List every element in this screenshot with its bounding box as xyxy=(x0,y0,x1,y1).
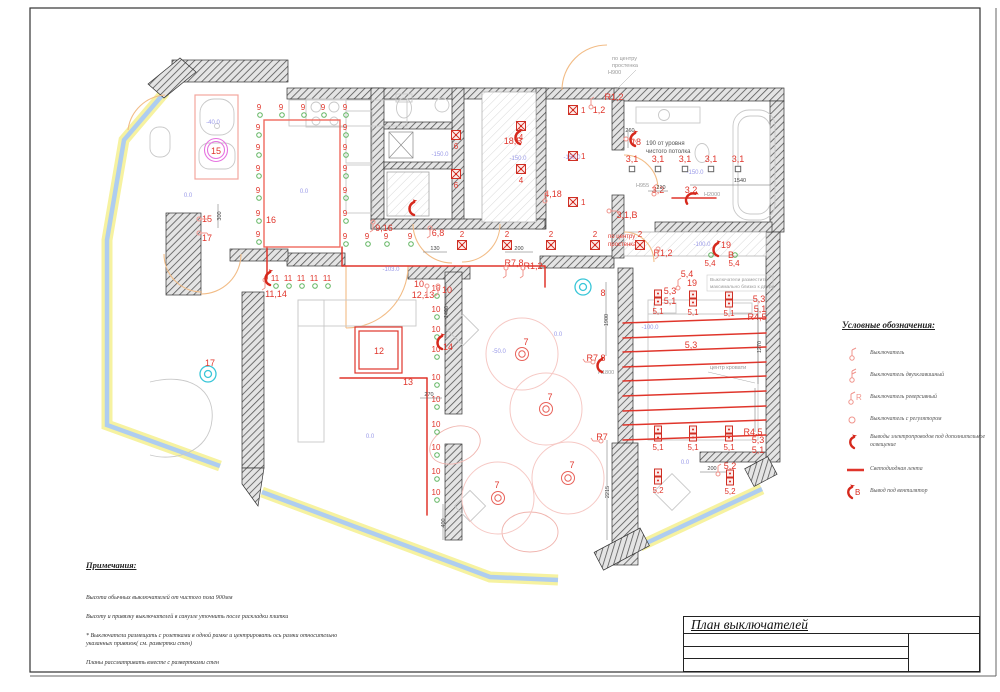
led-strip-icon xyxy=(842,462,870,478)
plan-label: 2 xyxy=(638,230,643,239)
plan-label: 6,8 xyxy=(432,228,445,238)
plan-label: 12,13 xyxy=(412,290,435,300)
plan-label: чистого потолка xyxy=(646,149,691,155)
downlight-marker xyxy=(258,113,263,118)
pendant-marker xyxy=(532,442,604,514)
switch-symbol xyxy=(676,278,681,290)
led-strip-line xyxy=(623,333,766,338)
plan-label: R1,2 xyxy=(604,92,623,102)
plan-label: 200 xyxy=(514,246,523,252)
downlight-marker xyxy=(257,153,262,158)
wall-light-marker xyxy=(727,470,734,485)
title-block-stamp-cell xyxy=(909,634,979,671)
plan-label: -100.0 xyxy=(693,242,711,248)
plan-label: 200 xyxy=(707,466,716,472)
plan-label: 7 xyxy=(523,337,528,347)
plan-label: 6 xyxy=(454,181,459,190)
plan-label: 9 xyxy=(343,209,348,218)
wall-light-marker xyxy=(690,291,697,306)
legend-item: Выключатель с регулятором xyxy=(842,412,994,428)
plan-label: 10 xyxy=(432,467,441,476)
plan-label: 10 xyxy=(432,488,441,497)
square-marker xyxy=(655,166,660,171)
cyan-circle-marker xyxy=(200,366,216,382)
legend-item-label: Вывод под вентилятор xyxy=(870,488,927,496)
plan-label: 1540 xyxy=(734,178,746,184)
plan-label: -150.0 xyxy=(686,170,704,176)
plan-label: 9 xyxy=(301,103,306,112)
plan-label: 9 xyxy=(343,164,348,173)
plan-label: R4,5 xyxy=(747,312,766,322)
note-item: * Выключатели размещать с розетками в од… xyxy=(86,632,338,648)
plan-label: 10 xyxy=(432,305,441,314)
plan-label: -40.0 xyxy=(206,120,220,126)
plan-label: 0.0 xyxy=(681,460,690,466)
plan-label: 10 xyxy=(414,279,424,289)
plan-label: 4,18 xyxy=(544,189,562,199)
switch-single-icon xyxy=(842,346,870,362)
downlight-marker xyxy=(435,477,440,482)
legend-item-label: Выключатель двухклавишный xyxy=(870,372,944,380)
plan-label: 190 от уровня xyxy=(646,141,685,147)
downlight-marker xyxy=(435,405,440,410)
downlight-marker xyxy=(257,219,262,224)
plan-label: 5,1 xyxy=(723,309,735,318)
plan-label: 7 xyxy=(494,480,499,490)
plan-label: -150.0 xyxy=(431,152,449,158)
plan-label: 2 xyxy=(460,230,465,239)
spot-marker xyxy=(591,241,600,250)
plan-label: 5,1 xyxy=(652,443,664,452)
wire-output-icon xyxy=(842,434,870,450)
note-item: Планы рассматривать вместе с развертками… xyxy=(86,659,338,667)
plan-label: 19 xyxy=(687,278,697,288)
plan-label: 3,1 xyxy=(705,154,718,164)
plan-label: 5,2 xyxy=(724,487,736,496)
plan-label: 9 xyxy=(408,232,413,241)
drawing-title: План выключателей xyxy=(691,617,808,632)
plan-label: 0.0 xyxy=(300,189,309,195)
plan-label: 10 xyxy=(432,373,441,382)
plan-label: 19 xyxy=(721,240,731,250)
led-strip-line xyxy=(623,391,766,396)
plan-label: 11 xyxy=(297,274,306,283)
plan-label: 1400 xyxy=(444,306,450,318)
downlight-marker xyxy=(257,240,262,245)
plan-label: 12 xyxy=(374,346,384,356)
fan-output-icon: В xyxy=(842,484,870,500)
note-item: Высоту и привязку выключателей в санузле… xyxy=(86,613,338,621)
plan-label: 9 xyxy=(256,230,261,239)
wall-light-marker xyxy=(655,469,662,484)
spot-marker xyxy=(452,131,461,140)
plan-label: 9 xyxy=(343,103,348,112)
plan-label: 3,1 xyxy=(652,154,665,164)
title-block-row xyxy=(684,659,908,671)
title-block-row xyxy=(684,634,908,647)
plan-label: 5,3 xyxy=(753,294,766,304)
legend-item: Выключатель xyxy=(842,346,994,362)
plan-label: H2000 xyxy=(704,192,720,198)
led-strip-line xyxy=(623,406,766,411)
plan-label: 10 xyxy=(442,285,452,295)
spot-marker xyxy=(517,165,526,174)
plan-label: 2 xyxy=(549,230,554,239)
notes-items: Высота обычных выключателей от чистого п… xyxy=(86,594,338,667)
plan-label: простенка xyxy=(612,63,639,69)
plan-label: 9 xyxy=(256,164,261,173)
led-contour-rect xyxy=(264,120,340,247)
plan-label: 7 xyxy=(569,460,574,470)
plan-label: 17 xyxy=(202,233,212,243)
downlight-marker xyxy=(385,242,390,247)
legend-item-label: Светодиодная лента xyxy=(870,466,923,474)
downlight-marker xyxy=(274,284,279,289)
plan-label: 8 xyxy=(600,288,605,298)
square-marker xyxy=(708,166,713,171)
plan-label: 3,1 xyxy=(626,154,639,164)
switch-double-icon xyxy=(842,368,870,384)
plan-label: 5,4 xyxy=(728,259,740,268)
plan-label: R1,2 xyxy=(523,261,542,271)
drawing-title-row: План выключателей xyxy=(684,617,979,634)
plan-label: 3,1,В xyxy=(616,210,637,220)
plan-label: 1 xyxy=(581,198,586,207)
plan-label: -150.0 xyxy=(509,156,527,162)
wall-light-marker xyxy=(690,426,697,441)
downlight-marker xyxy=(409,242,414,247)
spot-marker xyxy=(452,170,461,179)
downlight-marker xyxy=(435,355,440,360)
plan-label: по центру xyxy=(608,234,635,240)
plan-label: 5,1 xyxy=(687,443,699,452)
plan-label: 5,1 xyxy=(664,296,677,306)
plan-label: 5,1 xyxy=(652,307,664,316)
plan-label: 0.0 xyxy=(366,434,375,440)
plan-label: центр кровати xyxy=(710,365,746,371)
plan-label: 2215 xyxy=(605,486,611,498)
legend-item-label: Выключатель с регулятором xyxy=(870,416,941,424)
spot-marker xyxy=(636,241,645,250)
pendant-marker xyxy=(462,462,534,534)
plan-label: 5,2 xyxy=(724,461,737,471)
legend-item: Выключатель двухклавишный xyxy=(842,368,994,384)
plan-label: 11 xyxy=(271,274,280,283)
plan-label: 11 xyxy=(310,274,319,283)
wall-light-marker xyxy=(655,290,662,305)
plan-label: простенка xyxy=(608,242,637,248)
plan-label: 5,3 xyxy=(685,340,698,350)
wall-light-marker xyxy=(726,292,733,307)
spot-marker xyxy=(458,241,467,250)
downlight-marker xyxy=(287,284,292,289)
plan-label: 9 xyxy=(343,123,348,132)
plan-label: 5,4 xyxy=(704,259,716,268)
plan-label: 16 xyxy=(266,215,276,225)
spot-marker xyxy=(503,241,512,250)
note-item: Высота обычных выключателей от чистого п… xyxy=(86,594,338,602)
led-strip-line xyxy=(623,376,766,381)
plan-label: 10 xyxy=(432,443,441,452)
plan-label: 9 xyxy=(365,232,370,241)
square-marker xyxy=(735,166,740,171)
plan-label: максимально близко к двери xyxy=(710,284,775,290)
downlight-marker xyxy=(435,430,440,435)
downlight-marker xyxy=(322,113,327,118)
plan-label: 9 xyxy=(343,186,348,195)
pendant-marker xyxy=(510,373,582,445)
downlight-marker xyxy=(257,174,262,179)
legend-items: ВыключательВыключатель двухклавишныйRВык… xyxy=(842,346,994,500)
switch-reverse-icon: R xyxy=(842,390,870,406)
downlight-marker xyxy=(344,242,349,247)
plan-label: 0.0 xyxy=(554,332,563,338)
notes: Примечания: Высота обычных выключателей … xyxy=(86,560,338,678)
plan-label: 5,3 xyxy=(752,435,765,445)
plan-label: 1900 xyxy=(604,314,610,326)
title-block: План выключателей xyxy=(683,616,980,672)
title-block-rows xyxy=(684,634,909,671)
plan-label: 9 xyxy=(343,143,348,152)
plan-label: В xyxy=(728,250,734,260)
legend-item: Выводы электропроводов под дополнительно… xyxy=(842,434,994,450)
plan-label: 2 xyxy=(593,230,598,239)
plan-label: 270 xyxy=(424,392,433,398)
plan-label: -150.0 xyxy=(563,155,581,161)
led-strip-line xyxy=(623,318,766,323)
plan-label: 9 xyxy=(256,143,261,152)
legend-item: RВыключатель реверсивный xyxy=(842,390,994,406)
cyan-circle-marker xyxy=(575,279,591,295)
plan-label: 15 xyxy=(211,146,221,156)
downlight-marker xyxy=(344,219,349,224)
legend-item-label: Выключатель реверсивный xyxy=(870,394,937,402)
plan-label: по центру xyxy=(612,56,637,62)
plan-label: 10 xyxy=(432,325,441,334)
plan-label: 7 xyxy=(547,392,552,402)
plan-label: 14 xyxy=(443,342,453,352)
plan-label: -103.0 xyxy=(382,267,400,273)
downlight-marker xyxy=(280,113,285,118)
plan-label: 400 xyxy=(441,518,447,527)
title-block-grid xyxy=(684,634,979,671)
downlight-marker xyxy=(435,315,440,320)
downlight-marker xyxy=(435,498,440,503)
plan-label: 3,1 xyxy=(732,154,745,164)
plan-label: 5,3 xyxy=(664,286,677,296)
legend-item: ВВывод под вентилятор xyxy=(842,484,994,500)
plan-label: 10 xyxy=(432,420,441,429)
legend-heading: Условные обозначения: xyxy=(842,320,994,330)
title-block-row xyxy=(684,647,908,660)
plan-label: Н900 xyxy=(608,70,621,76)
plan-label: 6 xyxy=(454,142,459,151)
plan-label: 5,1 xyxy=(723,443,735,452)
plan-label: 9 xyxy=(257,103,262,112)
plan-label: 9 xyxy=(279,103,284,112)
plan-label: 11 xyxy=(284,274,293,283)
plan-label: 2 xyxy=(505,230,510,239)
notes-heading: Примечания: xyxy=(86,560,338,570)
plan-label: 210 xyxy=(656,185,665,191)
svg-text:В: В xyxy=(855,488,860,497)
downlight-marker xyxy=(257,133,262,138)
plan-label: 1,2 xyxy=(593,105,606,115)
plan-label: 4 xyxy=(519,176,524,185)
plan-label: 130 xyxy=(430,246,439,252)
plan-label: 17 xyxy=(205,358,215,368)
plan-label: 11 xyxy=(323,274,332,283)
spot-marker xyxy=(569,106,578,115)
plan-label: 5,1 xyxy=(752,445,765,455)
plan-label: 1 xyxy=(581,152,586,161)
plan-label: -50.0 xyxy=(492,349,506,355)
plan-label: 5,2 xyxy=(652,486,664,495)
plan-label: 11,14 xyxy=(265,289,287,299)
downlight-marker xyxy=(257,196,262,201)
downlight-marker xyxy=(313,284,318,289)
downlight-marker xyxy=(435,383,440,388)
downlight-marker xyxy=(366,242,371,247)
wall-light-marker xyxy=(726,426,733,441)
plan-label: 9 xyxy=(256,209,261,218)
plan-label: 9 xyxy=(256,186,261,195)
spot-marker xyxy=(547,241,556,250)
svg-text:R: R xyxy=(856,393,862,402)
legend-item-label: Выводы электропроводов под дополнительно… xyxy=(870,434,994,449)
plan-label: Выключатели разместить xyxy=(710,277,768,283)
led-strip-line xyxy=(623,420,766,425)
legend-item-label: Выключатель xyxy=(870,350,904,358)
plan-label: Н955 xyxy=(636,183,649,189)
downlight-marker xyxy=(326,284,331,289)
plan-label: 0.0 xyxy=(184,193,193,199)
plan-label: -100.0 xyxy=(641,325,659,331)
plan-label: 3,1 xyxy=(679,154,692,164)
plan-label: 9 xyxy=(343,232,348,241)
plan-label: 13 xyxy=(403,377,413,387)
plan-label: 9 xyxy=(321,103,326,112)
legend: Условные обозначения: ВыключательВыключа… xyxy=(842,320,994,506)
plan-label: 9 xyxy=(384,232,389,241)
plan-label: 1 xyxy=(581,106,586,115)
switch-dimmer-icon xyxy=(842,412,870,428)
plan-label: 9 xyxy=(256,123,261,132)
plan-label: 5,1 xyxy=(687,308,699,317)
square-marker xyxy=(629,166,634,171)
legend-item: Светодиодная лента xyxy=(842,462,994,478)
switch-symbol xyxy=(716,464,721,476)
downlight-marker xyxy=(300,284,305,289)
spot-marker xyxy=(569,198,578,207)
plan-markers: 9999999999999999999910101010101010101010… xyxy=(184,56,775,540)
downlight-marker xyxy=(435,453,440,458)
plan-label: 9,16 xyxy=(375,223,393,233)
